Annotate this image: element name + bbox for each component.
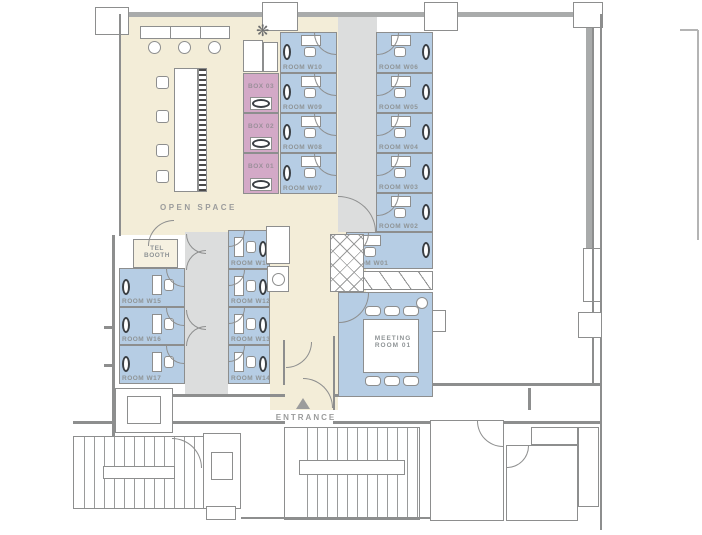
chair-icon (304, 47, 316, 57)
room-label: ROOM W09 (283, 104, 322, 111)
door-swing-icon (314, 33, 336, 55)
chair-icon (156, 170, 169, 183)
stairwell-right (284, 427, 420, 520)
chair-icon (246, 241, 256, 253)
room-w16: ROOM W16 (119, 307, 185, 345)
elevator-shaft (115, 388, 173, 433)
service-room (430, 420, 504, 521)
office-chair-icon (259, 279, 267, 295)
office-chair-icon (283, 84, 291, 100)
counter (266, 226, 290, 264)
office-chair-icon (422, 124, 430, 140)
room-w09: ROOM W09 (280, 73, 337, 113)
chair-icon (384, 376, 400, 386)
column (573, 2, 603, 28)
column (424, 2, 458, 31)
chair-icon (365, 306, 381, 316)
phone-seat-icon (252, 180, 270, 189)
cabinet (243, 40, 263, 72)
pillar (578, 312, 602, 338)
room-label: ROOM W07 (283, 185, 322, 192)
service-shaft (203, 433, 241, 509)
chair-icon (246, 356, 256, 368)
chair-icon (178, 41, 191, 54)
long-table (174, 68, 198, 192)
room-label: ROOM W04 (379, 144, 418, 151)
column (95, 7, 129, 35)
chair-icon (403, 306, 419, 316)
box-01: BOX 01 (243, 153, 279, 194)
room-w04: ROOM W04 (376, 113, 433, 153)
workstation-desk (140, 26, 230, 39)
duct (211, 452, 233, 480)
room-label: MEETING ROOM 01 (373, 335, 413, 349)
room-w17: ROOM W17 (119, 345, 185, 384)
room-w06: ROOM W06 (376, 32, 433, 73)
room-w14: ROOM W14 (228, 345, 270, 384)
chair-icon (394, 47, 406, 57)
room-label: BOX 03 (248, 83, 274, 90)
room-w02: ROOM W02 (376, 193, 433, 232)
room-label: ROOM W02 (379, 223, 418, 230)
office-chair-icon (122, 279, 130, 295)
office-chair-icon (422, 44, 430, 60)
room-label: BOX 01 (248, 163, 274, 170)
room-label: ROOM W12 (231, 298, 270, 305)
wall-segment (104, 326, 112, 329)
box-03: BOX 03 (243, 73, 279, 113)
chair-icon (394, 168, 406, 178)
room-w05: ROOM W05 (376, 73, 433, 113)
phone-seat-icon (252, 99, 270, 108)
chair-icon (304, 168, 316, 178)
plant-icon: ❋ (256, 24, 269, 40)
room-label: ROOM W16 (122, 336, 161, 343)
room-label: ROOM W03 (379, 184, 418, 191)
room-w13: ROOM W13 (228, 307, 270, 345)
duct (531, 427, 578, 445)
wall-segment (104, 364, 112, 367)
entrance-label: ENTRANCE (260, 413, 352, 422)
room-label: ROOM W10 (283, 64, 322, 71)
stair-landing (299, 460, 405, 475)
room-label: ROOM W06 (379, 64, 418, 71)
chair-icon (384, 306, 400, 316)
chair-icon (246, 318, 256, 330)
room-w10: ROOM W10 (280, 32, 337, 73)
chair-icon (246, 280, 256, 292)
wall-segment (128, 12, 574, 17)
entrance-arrow-icon (296, 398, 310, 409)
desk-icon (152, 352, 162, 372)
office-chair-icon (422, 204, 430, 220)
room-label: ROOM W17 (122, 375, 161, 382)
wall-segment (333, 336, 335, 410)
duct (206, 506, 236, 520)
room-label: ROOM W13 (231, 336, 270, 343)
room-label: TEL BOOTH (142, 245, 172, 259)
room-label: BOX 02 (248, 123, 274, 130)
room-w11: ROOM W11 (228, 230, 270, 269)
chair-icon (304, 88, 316, 98)
phone-seat-icon (252, 139, 270, 148)
room-label: ROOM W14 (231, 375, 270, 382)
door-swing-icon (477, 421, 503, 447)
desk-icon (152, 314, 162, 334)
office-chair-icon (283, 44, 291, 60)
room-label: ROOM W08 (283, 144, 322, 151)
room-w15: ROOM W15 (119, 268, 185, 307)
locker-bank (352, 271, 433, 290)
chair-icon (394, 128, 406, 138)
wall-segment (430, 383, 602, 386)
floor-plan: ROOM W10 ROOM W09 ROOM W08 ROOM W07 BOX … (0, 0, 702, 535)
chair-icon (394, 208, 406, 218)
chair-icon (156, 76, 169, 89)
chair-icon (156, 110, 169, 123)
office-chair-icon (259, 356, 267, 372)
door-swing-icon (314, 74, 336, 96)
wall-segment (73, 421, 285, 424)
chair-icon (304, 128, 316, 138)
office-chair-icon (422, 242, 430, 258)
chair-icon (365, 376, 381, 386)
office-chair-icon (122, 356, 130, 372)
door-swing-icon (507, 446, 529, 468)
chair-icon (403, 376, 419, 386)
chair-icon (394, 88, 406, 98)
wall-segment (119, 14, 121, 236)
wall-segment (241, 517, 431, 519)
desk-icon (152, 275, 162, 295)
sink (267, 266, 289, 292)
service-room (506, 445, 578, 521)
room-label: ROOM W05 (379, 104, 418, 111)
stair-landing (103, 466, 175, 479)
wall-segment (600, 14, 602, 530)
open-space-label: OPEN SPACE (160, 203, 237, 212)
sink-basin-icon (272, 273, 285, 286)
meeting-room-01: MEETING ROOM 01 (338, 292, 433, 397)
office-chair-icon (122, 317, 130, 333)
chair-icon (364, 247, 376, 257)
box-02: BOX 02 (243, 113, 279, 153)
chair-icon (156, 144, 169, 157)
office-chair-icon (283, 124, 291, 140)
chair-icon (208, 41, 221, 54)
wall-segment (680, 29, 698, 31)
wall-segment (528, 388, 531, 410)
duct (578, 427, 599, 507)
chair-icon (148, 41, 161, 54)
room-w03: ROOM W03 (376, 153, 433, 193)
room-w07: ROOM W07 (280, 153, 337, 194)
room-label: ROOM W11 (231, 260, 270, 267)
room-label: ROOM W15 (122, 298, 161, 305)
door-swing-icon (314, 154, 336, 176)
locker-unit (330, 234, 364, 292)
table-divider (198, 68, 207, 192)
office-chair-icon (259, 317, 267, 333)
room-w08: ROOM W08 (280, 113, 337, 153)
office-chair-icon (422, 164, 430, 180)
cabinet (263, 42, 278, 72)
door-swing-icon (314, 114, 336, 136)
wall-segment (283, 340, 285, 385)
elevator-car (127, 396, 161, 424)
room-w12: ROOM W12 (228, 269, 270, 307)
wall-segment (697, 30, 699, 240)
office-chair-icon (422, 84, 430, 100)
office-chair-icon (283, 165, 291, 181)
